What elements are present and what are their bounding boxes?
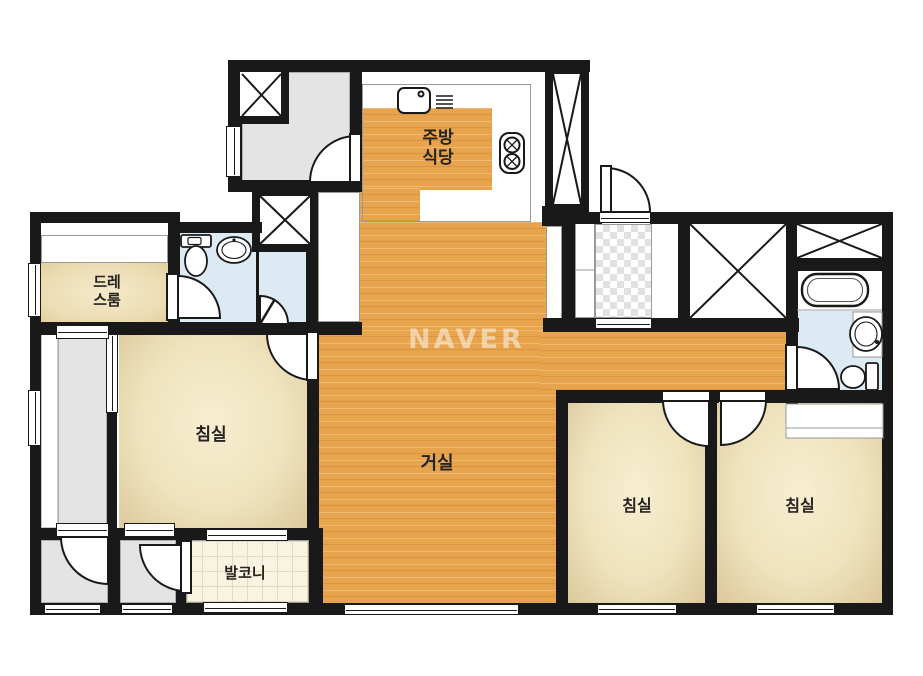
- entry-step-sill: [595, 318, 652, 329]
- window-icon: [344, 604, 519, 615]
- entry-cabinet-west: [546, 226, 562, 322]
- wall: [786, 258, 798, 348]
- entry-door-sill: [599, 212, 651, 223]
- wall: [882, 212, 893, 615]
- wall: [350, 60, 362, 138]
- mid-closet-floor: [260, 196, 310, 244]
- wall: [252, 188, 318, 196]
- window-icon: [56, 325, 109, 339]
- room-label-bedroom2: 침실: [607, 496, 667, 515]
- shower-stall-floor: [259, 252, 306, 330]
- dressroom-wardrobe: [41, 235, 168, 263]
- bathroom1-floor: [174, 233, 256, 325]
- window-icon: [597, 604, 677, 614]
- room-label-bedroom1: 침실: [181, 425, 241, 445]
- side-balcony-gray-strip: [58, 333, 107, 528]
- utility-room-b-floor: [120, 540, 176, 603]
- wall: [306, 244, 318, 330]
- wall: [766, 390, 893, 403]
- room-label-kitchen: 주방 식당: [408, 128, 468, 169]
- entry-closet-floor: [690, 224, 786, 318]
- upper-closet-floor: [797, 224, 882, 258]
- wall: [168, 222, 262, 233]
- hallway-floor: [540, 331, 790, 392]
- wall: [786, 258, 893, 271]
- vent-grill-icon: [436, 96, 453, 108]
- room-label-dressroom: 드레 스룸: [77, 273, 137, 309]
- wall: [176, 590, 186, 604]
- wall: [678, 212, 690, 322]
- utility-room-a-floor: [41, 540, 108, 603]
- wall: [252, 188, 260, 252]
- window-icon: [28, 263, 41, 317]
- range-burner-icon: [500, 133, 524, 173]
- dressroom-label-line1: 드레: [93, 273, 121, 291]
- window-icon: [121, 604, 173, 614]
- window-icon: [226, 126, 241, 177]
- floorplan-canvas: 주방 식당 드레 스룸 침실 거실 침실 침실 발코니 NAVER: [0, 0, 923, 676]
- wall: [176, 540, 186, 545]
- wall: [307, 378, 319, 532]
- wall: [252, 244, 314, 252]
- wall: [310, 188, 318, 248]
- kitchen-label-line1: 주방: [422, 128, 453, 148]
- window-icon: [44, 604, 101, 614]
- room-label-balcony: 발코니: [207, 564, 283, 582]
- duct-shaft-center: [545, 66, 589, 212]
- shoe-cabinet: [575, 217, 595, 318]
- wall: [556, 390, 662, 403]
- wall: [705, 390, 717, 608]
- wall: [168, 222, 180, 326]
- window-icon: [106, 334, 118, 413]
- wall: [108, 540, 120, 604]
- storage-strip: [318, 192, 360, 322]
- shower-partition: [256, 248, 259, 325]
- wall: [562, 212, 602, 224]
- wall: [556, 390, 568, 613]
- wall: [307, 322, 319, 332]
- room-label-living: 거실: [407, 453, 467, 475]
- naver-watermark: NAVER: [408, 324, 525, 355]
- wall: [30, 212, 180, 223]
- window-icon: [56, 523, 109, 537]
- window-icon: [28, 390, 41, 446]
- kitchen-label-line2: 식당: [422, 148, 453, 168]
- window-icon: [206, 529, 288, 541]
- bathroom2-tub-zone: [797, 271, 882, 311]
- window-icon: [203, 602, 288, 613]
- wall: [309, 528, 323, 604]
- side-balcony-white-strip: [41, 333, 58, 528]
- dressroom-label-line2: 스룸: [93, 291, 121, 309]
- entry-checker-floor: [595, 224, 652, 318]
- wall: [786, 224, 797, 260]
- wall: [350, 180, 362, 192]
- wall: [107, 412, 117, 532]
- window-icon: [756, 604, 835, 614]
- room-label-bedroom3: 침실: [770, 496, 830, 515]
- bathroom2-floor: [797, 311, 882, 398]
- window-icon: [124, 523, 175, 537]
- kitchen-living-connector-floor: [360, 222, 546, 334]
- duct-shaft-topleft: [232, 64, 289, 124]
- wall: [562, 212, 575, 332]
- wall: [543, 318, 799, 332]
